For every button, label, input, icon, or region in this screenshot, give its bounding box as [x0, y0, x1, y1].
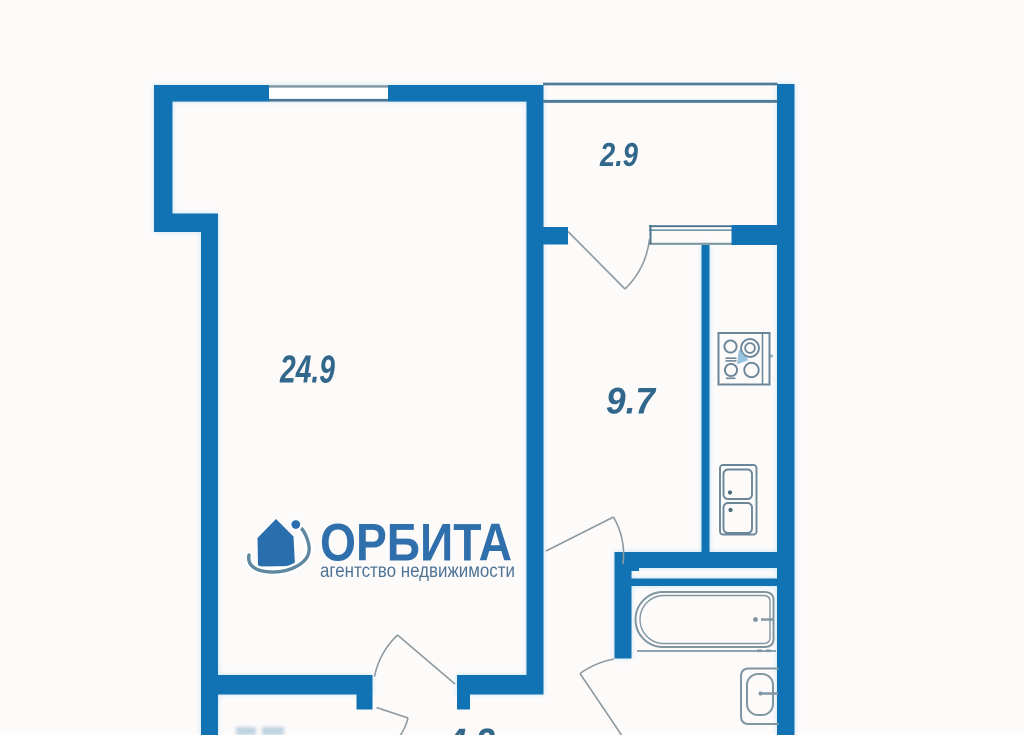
svg-text:4.2: 4.2 — [446, 722, 495, 735]
svg-text:агентство недвижимости: агентство недвижимости — [320, 561, 515, 582]
svg-text:24.9: 24.9 — [279, 349, 335, 392]
svg-text:2.9: 2.9 — [599, 136, 638, 173]
svg-text:9.7: 9.7 — [606, 381, 657, 422]
